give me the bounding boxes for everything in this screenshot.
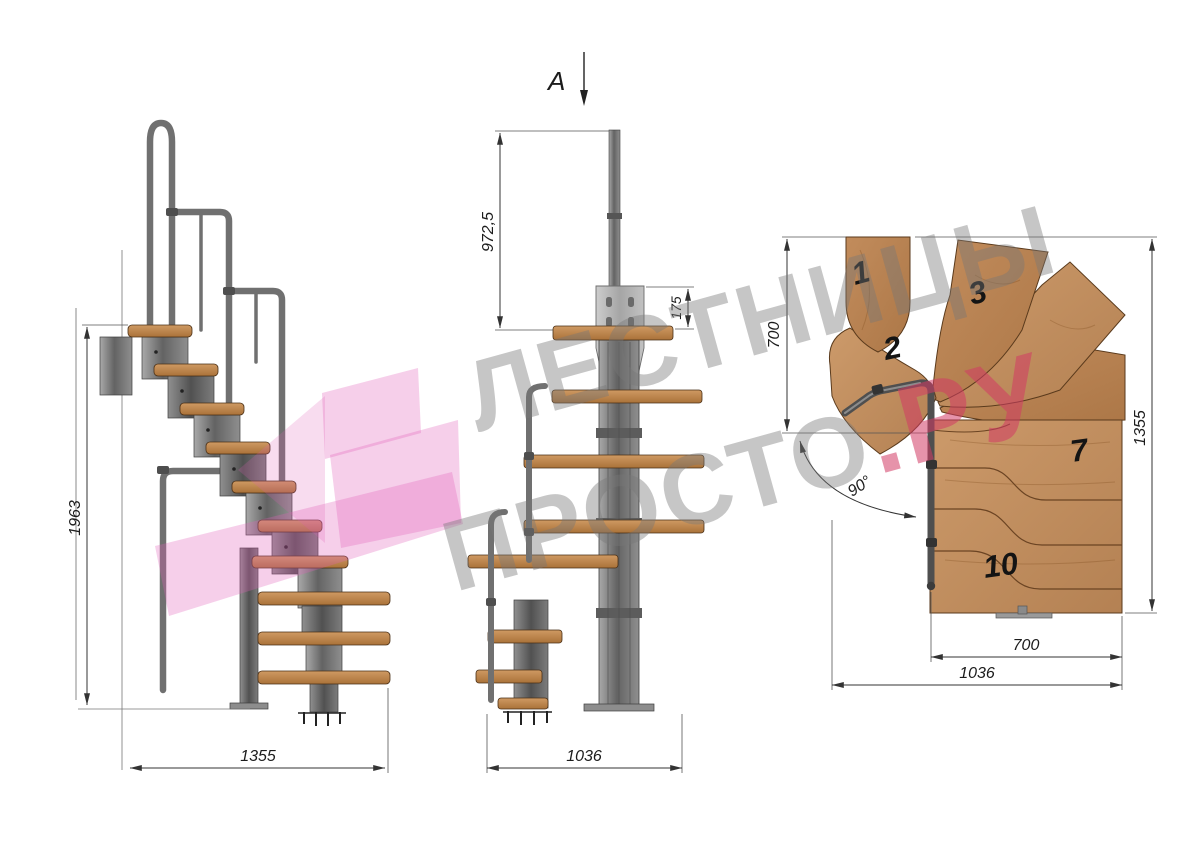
tread-number-10: 10 bbox=[981, 545, 1020, 584]
technical-drawing-page: 1963 1355 A bbox=[0, 0, 1200, 849]
tread bbox=[488, 630, 562, 643]
tread bbox=[154, 364, 218, 376]
dimension-pole-height: 972,5 bbox=[480, 212, 497, 252]
tread bbox=[258, 592, 390, 605]
tread bbox=[180, 403, 244, 415]
anchor-bolts bbox=[503, 711, 552, 725]
dimension-width: 1036 bbox=[566, 748, 602, 765]
dimension-width: 1355 bbox=[240, 748, 276, 765]
dimension-total-height: 1355 bbox=[1132, 410, 1149, 446]
lower-column bbox=[514, 600, 548, 708]
dimension-height: 1963 bbox=[67, 500, 84, 536]
tread bbox=[498, 698, 548, 709]
base-plate bbox=[584, 704, 654, 711]
column-base bbox=[230, 703, 268, 709]
tread bbox=[476, 670, 542, 683]
staircase-drawing: 1963 1355 A bbox=[0, 0, 1200, 849]
section-arrow-icon bbox=[580, 90, 588, 106]
pole-coupler bbox=[607, 213, 622, 219]
dimension-tread-width: 700 bbox=[1013, 637, 1040, 654]
dimension-total-width: 1036 bbox=[959, 665, 995, 682]
tread bbox=[258, 671, 390, 684]
tread bbox=[258, 632, 390, 645]
handrail-end-cap bbox=[927, 582, 935, 590]
tread bbox=[128, 325, 192, 337]
wall-bracket bbox=[100, 337, 132, 395]
section-marker: A bbox=[546, 52, 588, 106]
handrail-loop bbox=[150, 123, 172, 332]
section-label: A bbox=[546, 66, 565, 96]
anchor-bolts bbox=[298, 712, 346, 726]
